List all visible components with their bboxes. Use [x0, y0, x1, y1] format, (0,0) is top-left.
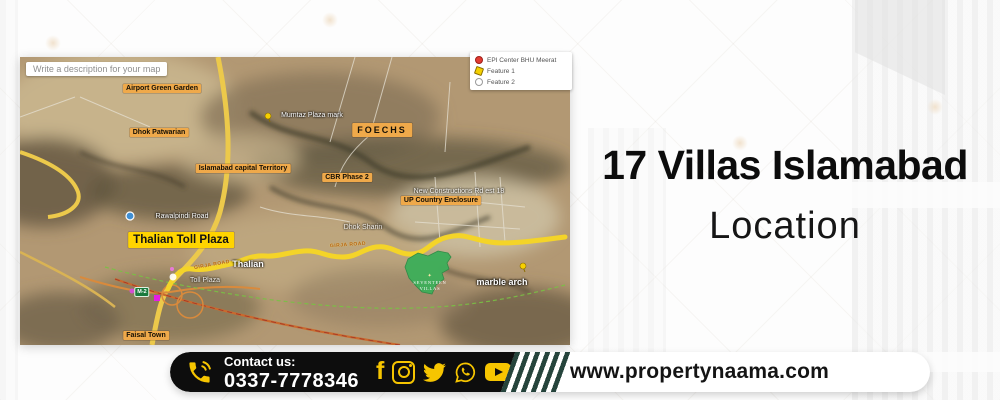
legend-item: EPI Center BHU Meerat	[475, 56, 567, 64]
twitter-icon[interactable]	[423, 361, 446, 384]
map-label-toll-plaza: Toll Plaza	[190, 277, 220, 284]
legend-item: Feature 1	[475, 67, 567, 75]
gray-dot-icon	[475, 78, 483, 86]
map-label-dhok-patwarian: Dhok Patwarian	[130, 128, 189, 137]
pattern-dot	[322, 12, 338, 28]
legend-item: Feature 2	[475, 78, 567, 86]
map-label-constructions-rd: New Constructions Rd est 18	[414, 188, 505, 195]
satellite-imagery	[20, 57, 570, 345]
contact-info[interactable]: Contact us: 0337-7778346	[224, 355, 359, 392]
site-name-label: SEVENTEEN VILLAS	[413, 280, 446, 291]
m2-motorway-badge: M-2	[134, 287, 149, 297]
map-label-dhok-sharin: Dhok Sharin	[344, 224, 383, 231]
map-label-thalian-toll-plaza: Thalian Toll Plaza	[128, 232, 234, 248]
logo-ornament-icon: ✦	[407, 273, 453, 280]
contact-footer-bar: Contact us: 0337-7778346 f www.propertyn…	[170, 352, 930, 392]
map-label-marble-arch: marble arch	[476, 277, 527, 287]
legend-label: Feature 1	[487, 68, 515, 75]
website-link[interactable]: www.propertynaama.com	[570, 360, 829, 384]
map-label-cbr-phase-2: CBR Phase 2	[322, 173, 372, 182]
legend-label: Feature 2	[487, 79, 515, 86]
map-label-airport-green-garden: Airport Green Garden	[123, 84, 201, 93]
map-label-rawalpindi-road: Rawalpindi Road	[156, 213, 209, 220]
title-block: 17 Villas Islamabad Location	[570, 142, 1000, 248]
phone-call-icon	[186, 359, 213, 386]
instagram-icon[interactable]	[392, 361, 415, 384]
map-legend: EPI Center BHU Meerat Feature 1 Feature …	[470, 52, 572, 90]
map-label-plaza-mark: Mumtaz Plaza mark	[281, 112, 343, 119]
map-label-thalian: Thalian	[232, 259, 264, 269]
instagram-dot	[409, 364, 412, 367]
map-label-up-country-enclosure: UP Country Enclosure	[401, 196, 481, 205]
background-building-left	[0, 0, 18, 400]
social-icons-row: f	[376, 352, 511, 392]
whatsapp-icon[interactable]	[454, 361, 477, 384]
page-title: 17 Villas Islamabad	[570, 142, 1000, 189]
pattern-dot	[45, 35, 61, 51]
red-dot-icon	[475, 56, 483, 64]
seventeen-villas-site-logo: ✦ SEVENTEEN VILLAS	[407, 273, 453, 293]
location-map[interactable]: Write a description for your map EPI Cen…	[20, 57, 570, 345]
map-label-foechs: FOECHS	[352, 123, 412, 137]
legend-label: EPI Center BHU Meerat	[487, 57, 556, 64]
phone-number: 0337-7778346	[224, 370, 359, 392]
pattern-dot	[927, 99, 943, 115]
page-subtitle: Location	[570, 205, 1000, 248]
play-triangle	[495, 368, 503, 376]
yellow-pin-icon	[474, 66, 484, 76]
facebook-icon[interactable]: f	[376, 359, 384, 384]
map-description-input[interactable]: Write a description for your map	[26, 62, 167, 76]
map-label-faisal-town: Faisal Town	[123, 331, 169, 340]
instagram-lens	[398, 366, 410, 378]
map-label-islamabad-capital-territory: Islamabad capital Territory	[196, 164, 291, 173]
contact-label: Contact us:	[224, 355, 359, 370]
